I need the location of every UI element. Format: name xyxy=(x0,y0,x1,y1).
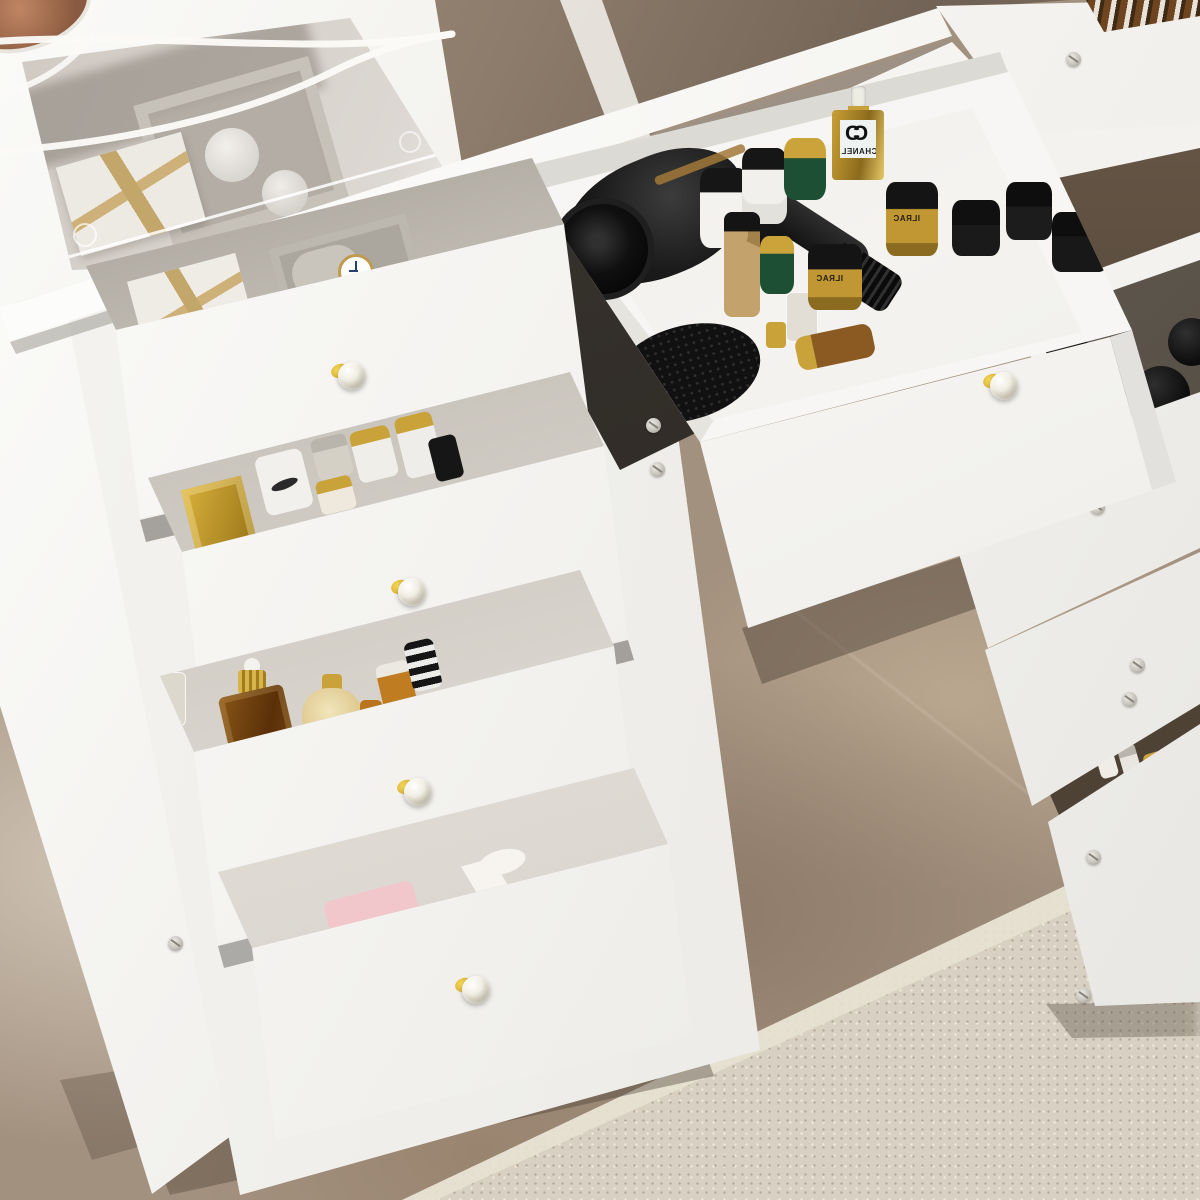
drawer4-crystal-knob xyxy=(458,976,492,1010)
black-jar xyxy=(1006,182,1052,240)
glass-corner-bumper xyxy=(399,131,421,153)
screw xyxy=(1076,988,1091,1003)
glass-corner-bumper xyxy=(73,223,97,247)
brush-mark xyxy=(270,475,299,494)
white-bottle-brush-mark xyxy=(253,447,314,517)
vanity-product-photo: C C CHANEL ILRAC ILRAC xyxy=(0,0,1200,1200)
black-jar xyxy=(1168,318,1200,366)
black-jar-gold-label: ILRAC xyxy=(886,182,938,256)
black-jar xyxy=(952,200,1000,256)
drawer3-crystal-knob xyxy=(400,778,434,812)
screw xyxy=(650,462,665,477)
drawer2-crystal-knob xyxy=(394,578,428,612)
screw xyxy=(168,936,183,951)
slim-amber-bottle xyxy=(724,212,760,317)
knob-crystal xyxy=(404,778,432,806)
logo-c-right: C xyxy=(853,122,868,146)
mini-gold-bottle xyxy=(766,322,786,348)
jar-brand-text: ILRAC xyxy=(816,274,843,283)
perfume-brand-text: CHANEL xyxy=(841,147,876,156)
silver-cap-bottle xyxy=(309,432,354,481)
screw xyxy=(1086,850,1101,865)
jar-brand-text: ILRAC xyxy=(893,214,920,223)
black-jar-gold-label: ILRAC xyxy=(808,244,862,310)
black-slim-bottle xyxy=(427,433,465,482)
knob-crystal xyxy=(398,578,426,606)
drawer1-crystal-knob xyxy=(334,362,368,396)
knob-crystal xyxy=(338,362,366,390)
screw xyxy=(1130,658,1145,673)
gold-cap-white-bottle xyxy=(348,424,399,484)
screw xyxy=(646,418,661,433)
knob-crystal xyxy=(990,372,1018,400)
chanel-perfume-bottle: C C CHANEL xyxy=(832,98,884,180)
screw xyxy=(1122,692,1137,707)
green-jar-gold-lid xyxy=(784,138,826,200)
main-drawer-crystal-knob xyxy=(986,372,1020,406)
perfume-label: C C CHANEL xyxy=(840,120,876,158)
screw xyxy=(1066,52,1081,67)
knob-crystal xyxy=(462,976,490,1004)
watch-hour-hand xyxy=(349,270,358,272)
perfume-body: C C CHANEL xyxy=(832,110,884,180)
green-jar-gold-lid xyxy=(760,236,794,294)
perfume-cap xyxy=(851,86,866,108)
